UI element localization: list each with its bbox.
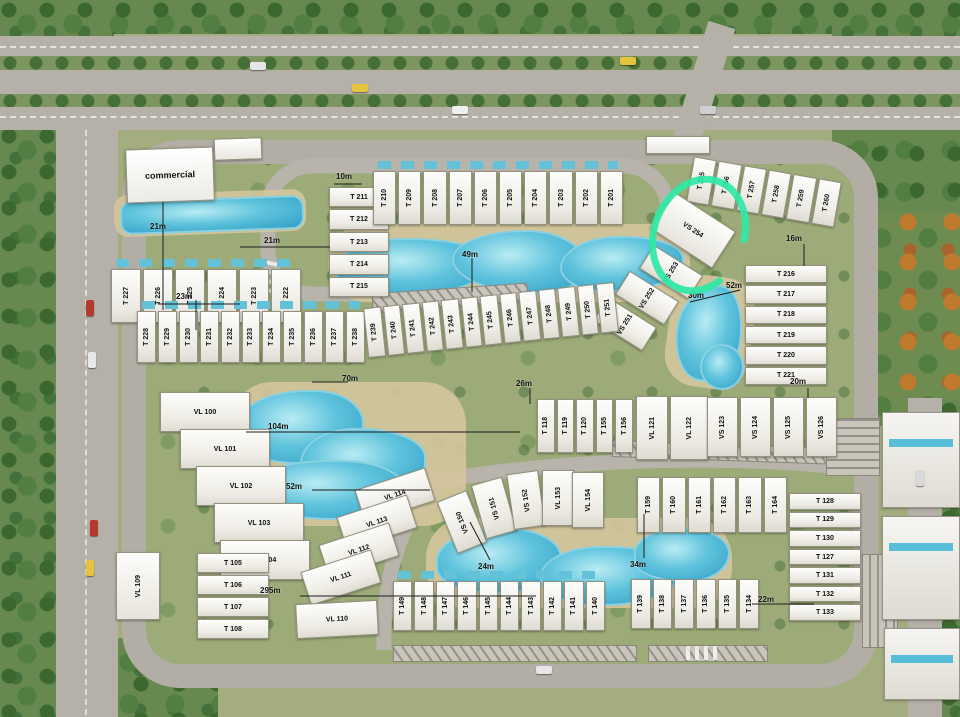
unit-label: T 211 — [350, 194, 368, 201]
unit-label: T 108 — [224, 626, 242, 633]
unit-t-119: T 119 — [557, 399, 575, 453]
unit-label: VL 153 — [555, 487, 562, 509]
unit-t-245: T 245 — [480, 294, 503, 346]
unit-vl-103: VL 103 — [214, 503, 304, 543]
unit-label: T 244 — [467, 313, 476, 332]
neighbor-building — [882, 412, 960, 508]
unit-t-229: T 229 — [158, 311, 177, 363]
unit-label: VS 126 — [818, 416, 825, 439]
distance-label: 26m — [516, 379, 532, 388]
neighbor-building — [882, 516, 960, 620]
unit-t-239: T 239 — [363, 306, 386, 358]
car — [352, 84, 368, 92]
unit-t-240: T 240 — [383, 304, 406, 356]
clubhouse-roof — [646, 136, 710, 154]
unit-label: T 202 — [583, 189, 590, 207]
unit-label: T 204 — [532, 189, 539, 207]
unit-label: T 247 — [525, 307, 534, 326]
unit-label: VS 123 — [719, 416, 726, 439]
unit-t-238: T 238 — [346, 311, 365, 363]
unit-label: VL 121 — [649, 417, 656, 439]
unit-label: T 164 — [772, 496, 779, 514]
unit-label: T 143 — [528, 597, 535, 615]
unit-vs-123: VS 123 — [707, 397, 738, 457]
car — [452, 106, 468, 114]
unit-t-135: T 135 — [718, 579, 738, 629]
unit-label: T 227 — [123, 287, 130, 305]
distance-label: 21m — [150, 222, 166, 231]
unit-t-107: T 107 — [197, 597, 269, 617]
unit-t-237: T 237 — [325, 311, 344, 363]
unit-label: T 228 — [143, 328, 150, 346]
unit-label: T 237 — [331, 328, 338, 346]
unit-label: VL 100 — [194, 409, 216, 416]
unit-label: T 131 — [816, 572, 834, 579]
unit-label: T 205 — [507, 189, 514, 207]
unit-vs-125: VS 125 — [773, 397, 804, 457]
unit-label: T 134 — [746, 595, 753, 613]
unit-label: T 215 — [350, 283, 368, 290]
unit-label: T 128 — [816, 498, 834, 505]
unit-label: VL 101 — [214, 446, 236, 453]
unit-label: T 249 — [564, 303, 573, 322]
neighbor-building — [884, 628, 960, 700]
unit-label: T 248 — [545, 305, 554, 324]
building-row-228-238: T 228T 229T 230T 231T 232T 233T 234T 235… — [136, 310, 366, 364]
unit-t-219: T 219 — [745, 326, 827, 344]
unit-t-204: T 204 — [524, 171, 547, 225]
distance-label: 10m — [336, 172, 352, 181]
unit-t-148: T 148 — [414, 581, 433, 631]
unit-label: T 138 — [659, 595, 666, 613]
unit-t-129: T 129 — [789, 512, 861, 529]
unit-vl-153: VL 153 — [542, 470, 574, 526]
unit-t-234: T 234 — [262, 311, 281, 363]
unit-t-209: T 209 — [398, 171, 421, 225]
distance-label: 34m — [630, 560, 646, 569]
unit-label: VS 151 — [487, 496, 500, 520]
car — [250, 62, 266, 70]
unit-label: T 212 — [350, 216, 368, 223]
unit-t-146: T 146 — [457, 581, 476, 631]
unit-t-208: T 208 — [423, 171, 446, 225]
unit-label: T 233 — [247, 328, 254, 346]
unit-t-231: T 231 — [200, 311, 219, 363]
unit-label: VS 150 — [454, 510, 469, 534]
distance-label: 22m — [758, 595, 774, 604]
unit-t-141: T 141 — [564, 581, 583, 631]
unit-label: T 256 — [722, 176, 732, 195]
unit-label: T 210 — [381, 189, 388, 207]
unit-label: T 236 — [310, 328, 317, 346]
unit-label: VS 124 — [752, 416, 759, 439]
unit-t-221: T 221 — [745, 367, 827, 385]
distance-label: 23m — [176, 292, 192, 301]
unit-t-202: T 202 — [575, 171, 598, 225]
unit-label: T 127 — [816, 554, 834, 561]
unit-label: VL 122 — [686, 417, 693, 439]
unit-label: T 243 — [448, 315, 457, 334]
unit-label: T 259 — [796, 189, 806, 208]
unit-label: T 230 — [185, 328, 192, 346]
unit-t-163: T 163 — [738, 477, 761, 533]
villa-row-123-126: VS 123VS 124VS 125VS 126 — [706, 396, 838, 458]
unit-label: T 213 — [350, 239, 368, 246]
distance-label: 16m — [786, 234, 802, 243]
distance-label: 49m — [462, 250, 478, 259]
unit-vl-154: VL 154 — [572, 472, 604, 528]
car — [916, 470, 924, 486]
unit-t-144: T 144 — [500, 581, 519, 631]
unit-t-127: T 127 — [789, 549, 861, 566]
unit-t-236: T 236 — [304, 311, 323, 363]
unit-t-142: T 142 — [543, 581, 562, 631]
unit-t-228: T 228 — [137, 311, 156, 363]
unit-label: T 219 — [777, 332, 795, 339]
distance-label: 52m — [726, 281, 742, 290]
unit-t-203: T 203 — [549, 171, 572, 225]
unit-t-164: T 164 — [764, 477, 787, 533]
unit-label: T 251 — [603, 298, 612, 317]
unit-t-205: T 205 — [499, 171, 522, 225]
unit-t-230: T 230 — [179, 311, 198, 363]
unit-vl-121: VL 121 — [636, 396, 668, 460]
unit-t-155: T 155 — [596, 399, 614, 453]
unit-label: VL 103 — [248, 520, 270, 527]
unit-label: T 235 — [289, 328, 296, 346]
unit-label: T 242 — [428, 317, 437, 336]
commercial-annex — [214, 137, 263, 161]
unit-t-161: T 161 — [688, 477, 711, 533]
distance-label: 21m — [264, 236, 280, 245]
unit-label: T 239 — [370, 323, 379, 342]
unit-vl-111: VL 111 — [300, 549, 381, 605]
unit-label: T 145 — [485, 597, 492, 615]
unit-label: T 133 — [816, 609, 834, 616]
unit-t-136: T 136 — [696, 579, 716, 629]
unit-label: VL 154 — [585, 489, 592, 511]
unit-label: T 240 — [389, 321, 398, 340]
road-median-trees — [0, 56, 960, 70]
unit-label: T 216 — [777, 271, 795, 278]
unit-t-217: T 217 — [745, 285, 827, 303]
unit-t-118: T 118 — [537, 399, 555, 453]
unit-label: T 161 — [696, 496, 703, 514]
building-row-210-201: T 210T 209T 208T 207T 206T 205T 204T 203… — [372, 170, 624, 226]
unit-label: T 250 — [584, 301, 593, 320]
commercial-label: commercial — [145, 169, 195, 181]
unit-label: VL 111 — [330, 571, 353, 584]
unit-label: T 220 — [777, 352, 795, 359]
unit-label: T 105 — [224, 560, 242, 567]
distance-label: 52m — [286, 482, 302, 491]
unit-label: T 214 — [350, 261, 368, 268]
distance-label: 295m — [260, 586, 280, 595]
unit-label: T 146 — [463, 597, 470, 615]
unit-label: T 258 — [771, 185, 781, 204]
villa-109: VL 109 — [116, 552, 160, 620]
unit-label: VL 110 — [326, 615, 348, 623]
building-col-127-133: T 128T 129T 130T 127T 131T 132T 133 — [788, 492, 862, 622]
unit-label: T 209 — [406, 189, 413, 207]
unit-t-128: T 128 — [789, 493, 861, 510]
unit-label: T 147 — [442, 597, 449, 615]
distance-label: 30m — [688, 291, 704, 300]
unit-t-244: T 244 — [460, 296, 483, 348]
unit-t-210: T 210 — [373, 171, 396, 225]
car — [536, 666, 552, 674]
unit-label: T 208 — [432, 189, 439, 207]
unit-label: T 137 — [681, 595, 688, 613]
unit-label: T 142 — [549, 597, 556, 615]
villa-pair-121-122: VL 121VL 122 — [636, 396, 708, 460]
unit-label: VL 102 — [230, 483, 252, 490]
unit-label: T 245 — [487, 311, 496, 330]
commercial-building: commercial — [125, 146, 215, 203]
car — [700, 106, 716, 114]
unit-t-132: T 132 — [789, 586, 861, 603]
unit-t-143: T 143 — [521, 581, 540, 631]
unit-label: T 144 — [506, 597, 513, 615]
unit-t-235: T 235 — [283, 311, 302, 363]
left-road — [56, 126, 118, 717]
building-col-105-108: T 105T 106T 107T 108 — [196, 552, 270, 640]
unit-label: T 135 — [724, 595, 731, 613]
unit-label: T 107 — [224, 604, 242, 611]
distance-label: 20m — [790, 377, 806, 386]
unit-label: VS 252 — [638, 286, 656, 309]
parking-strip — [393, 645, 637, 662]
unit-label: T 160 — [670, 496, 677, 514]
unit-t-138: T 138 — [653, 579, 673, 629]
unit-label: T 141 — [570, 597, 577, 615]
unit-label: T 207 — [457, 189, 464, 207]
unit-label: T 139 — [637, 595, 644, 613]
master-plan-map: commercial T 227T 226T 225T 224T 223T 22… — [0, 0, 960, 717]
unit-t-250: T 250 — [577, 284, 600, 336]
unit-label: T 229 — [164, 328, 171, 346]
unit-label: T 148 — [421, 597, 428, 615]
unit-label: T 120 — [581, 417, 588, 435]
unit-label: T 260 — [821, 194, 831, 213]
unit-t-145: T 145 — [479, 581, 498, 631]
tree-area — [0, 126, 58, 717]
unit-label: T 162 — [721, 496, 728, 514]
unit-t-213: T 213 — [329, 232, 389, 252]
unit-label: VS 152 — [521, 488, 531, 512]
unit-label: T 163 — [746, 496, 753, 514]
unit-label: T 201 — [608, 189, 615, 207]
building-row-149-140: T 149T 148T 147T 146T 145T 144T 143T 142… — [392, 580, 606, 632]
unit-label: VS 125 — [785, 416, 792, 439]
distance-label: 24m — [478, 562, 494, 571]
building-row-118-156: T 118T 119T 120T 155T 156 — [536, 398, 634, 454]
unit-label: T 156 — [621, 417, 628, 435]
unit-label: T 232 — [227, 328, 234, 346]
unit-label: VL 109 — [135, 575, 142, 597]
car — [86, 300, 94, 316]
unit-label: T 246 — [506, 309, 515, 328]
unit-t-131: T 131 — [789, 567, 861, 584]
unit-label: T 203 — [558, 189, 565, 207]
unit-label: T 129 — [816, 516, 834, 523]
unit-vs-152: VS 152 — [506, 470, 545, 530]
crosswalk — [686, 646, 722, 660]
unit-t-201: T 201 — [600, 171, 623, 225]
unit-t-206: T 206 — [474, 171, 497, 225]
building-row-139-134: T 139T 138T 137T 136T 135T 134 — [630, 578, 760, 630]
car — [620, 57, 636, 65]
lane-marking — [0, 46, 960, 48]
unit-vl-102: VL 102 — [196, 466, 286, 506]
unit-label: T 231 — [206, 328, 213, 346]
unit-label: T 159 — [645, 496, 652, 514]
unit-t-246: T 246 — [499, 292, 522, 344]
unit-label: T 149 — [399, 597, 406, 615]
unit-label: T 234 — [268, 328, 275, 346]
unit-label: T 136 — [702, 595, 709, 613]
building-col-216-221: T 216T 217T 218T 219T 220T 221 — [744, 264, 828, 386]
unit-t-139: T 139 — [631, 579, 651, 629]
unit-t-207: T 207 — [449, 171, 472, 225]
unit-label: T 238 — [352, 328, 359, 346]
unit-label: VS 254 — [681, 221, 704, 239]
unit-t-134: T 134 — [739, 579, 759, 629]
unit-vl-101: VL 101 — [180, 429, 270, 469]
unit-t-215: T 215 — [329, 277, 389, 297]
unit-t-133: T 133 — [789, 604, 861, 621]
unit-vl-110: VL 110 — [295, 600, 379, 639]
unit-vl-122: VL 122 — [670, 396, 708, 460]
distance-label: 70m — [342, 374, 358, 383]
unit-t-147: T 147 — [436, 581, 455, 631]
unit-t-220: T 220 — [745, 346, 827, 364]
unit-t-247: T 247 — [518, 290, 541, 342]
unit-t-105: T 105 — [197, 553, 269, 573]
unit-vs-126: VS 126 — [806, 397, 837, 457]
villa-cluster-150-154: VS 150VS 151VS 152VL 153VL 154 — [446, 470, 606, 552]
unit-t-243: T 243 — [441, 298, 464, 350]
lane-marking — [85, 130, 87, 715]
lagoon-pool — [634, 528, 730, 582]
unit-vs-124: VS 124 — [740, 397, 771, 457]
unit-t-232: T 232 — [221, 311, 240, 363]
unit-t-218: T 218 — [745, 306, 827, 324]
unit-label: T 132 — [816, 591, 834, 598]
unit-label: VS 253 — [662, 260, 680, 283]
unit-t-156: T 156 — [615, 399, 633, 453]
unit-t-251: T 251 — [596, 282, 619, 334]
unit-label: T 257 — [747, 180, 757, 199]
road-median-trees — [0, 94, 960, 107]
unit-t-130: T 130 — [789, 530, 861, 547]
unit-t-149: T 149 — [393, 581, 412, 631]
unit-label: T 119 — [562, 417, 569, 435]
unit-label: T 206 — [482, 189, 489, 207]
unit-label: T 106 — [224, 582, 242, 589]
distance-label: 104m — [268, 422, 288, 431]
unit-t-233: T 233 — [242, 311, 261, 363]
unit-t-159: T 159 — [637, 477, 660, 533]
unit-label: T 140 — [592, 597, 599, 615]
car — [88, 352, 96, 368]
unit-label: T 218 — [777, 311, 795, 318]
unit-t-108: T 108 — [197, 619, 269, 639]
car — [90, 520, 98, 536]
unit-t-160: T 160 — [662, 477, 685, 533]
building-row-159-164: T 159T 160T 161T 162T 163T 164 — [636, 476, 788, 534]
unit-label: T 130 — [816, 535, 834, 542]
unit-t-140: T 140 — [586, 581, 605, 631]
unit-label: T 255 — [697, 172, 707, 191]
unit-label: T 118 — [542, 417, 549, 435]
unit-label: T 155 — [601, 417, 608, 435]
unit-t-120: T 120 — [576, 399, 594, 453]
car — [86, 560, 94, 576]
lane-marking — [0, 116, 960, 118]
unit-t-214: T 214 — [329, 254, 389, 274]
unit-label: T 241 — [409, 319, 418, 338]
unit-t-137: T 137 — [674, 579, 694, 629]
tree-area — [0, 0, 960, 34]
unit-t-106: T 106 — [197, 575, 269, 595]
unit-t-162: T 162 — [713, 477, 736, 533]
unit-vl-100: VL 100 — [160, 392, 250, 432]
unit-t-216: T 216 — [745, 265, 827, 283]
unit-label: T 217 — [777, 291, 795, 298]
